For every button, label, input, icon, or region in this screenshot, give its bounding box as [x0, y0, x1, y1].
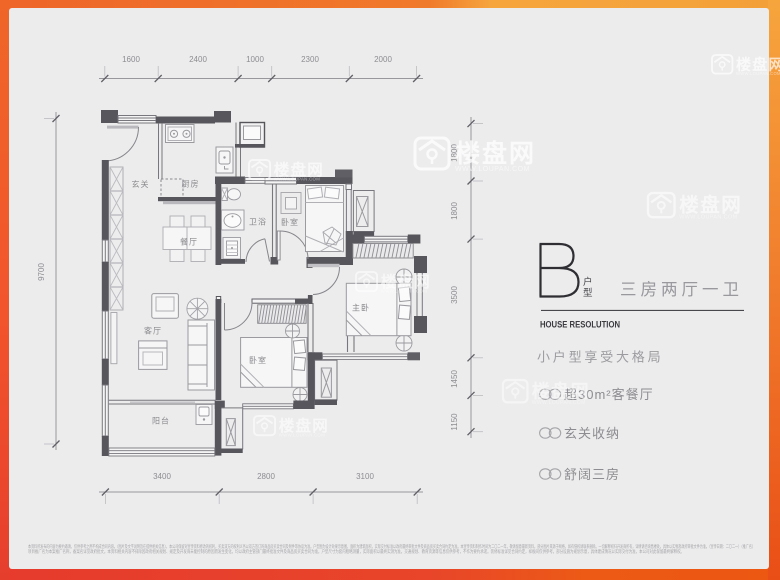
- svg-text:三房两厅一卫: 三房两厅一卫: [620, 280, 743, 299]
- svg-text:1800: 1800: [450, 202, 459, 220]
- svg-text:1450: 1450: [450, 370, 459, 388]
- svg-text:1000: 1000: [246, 55, 264, 64]
- svg-text:舒阔三房: 舒阔三房: [564, 467, 620, 482]
- svg-text:卫浴: 卫浴: [249, 217, 267, 227]
- svg-text:餐厅: 餐厅: [180, 238, 198, 247]
- svg-text:3400: 3400: [153, 472, 171, 481]
- svg-text:小户型享受大格局: 小户型享受大格局: [537, 350, 663, 365]
- svg-text:1600: 1600: [122, 55, 140, 64]
- svg-text:9700: 9700: [37, 263, 46, 281]
- svg-text:卧室: 卧室: [281, 217, 299, 227]
- svg-text:型: 型: [583, 288, 593, 299]
- svg-text:2300: 2300: [301, 55, 319, 64]
- svg-text:卧室: 卧室: [249, 355, 267, 365]
- svg-text:2000: 2000: [374, 55, 392, 64]
- svg-text:3500: 3500: [450, 286, 459, 304]
- svg-text:1150: 1150: [450, 413, 459, 431]
- svg-text:阳台: 阳台: [152, 416, 170, 426]
- svg-text:客厅: 客厅: [144, 326, 162, 336]
- svg-text:户: 户: [583, 276, 593, 288]
- svg-text:2400: 2400: [189, 55, 207, 64]
- svg-text:HOUSE RESOLUTION: HOUSE RESOLUTION: [540, 320, 620, 331]
- svg-text:厨房: 厨房: [182, 179, 200, 189]
- svg-text:玄关: 玄关: [132, 179, 150, 189]
- svg-text:项目推广名为本案推广名称，备案名详见政府批文。本资料相关内容: 项目推广名为本案推广名称，备案名详见政府批文。本资料相关内容不排除因政府相关规划…: [28, 548, 684, 555]
- svg-text:主卧: 主卧: [352, 303, 370, 313]
- svg-text:3100: 3100: [356, 472, 374, 481]
- svg-text:2800: 2800: [257, 472, 275, 481]
- svg-text:玄关收纳: 玄关收纳: [564, 426, 620, 441]
